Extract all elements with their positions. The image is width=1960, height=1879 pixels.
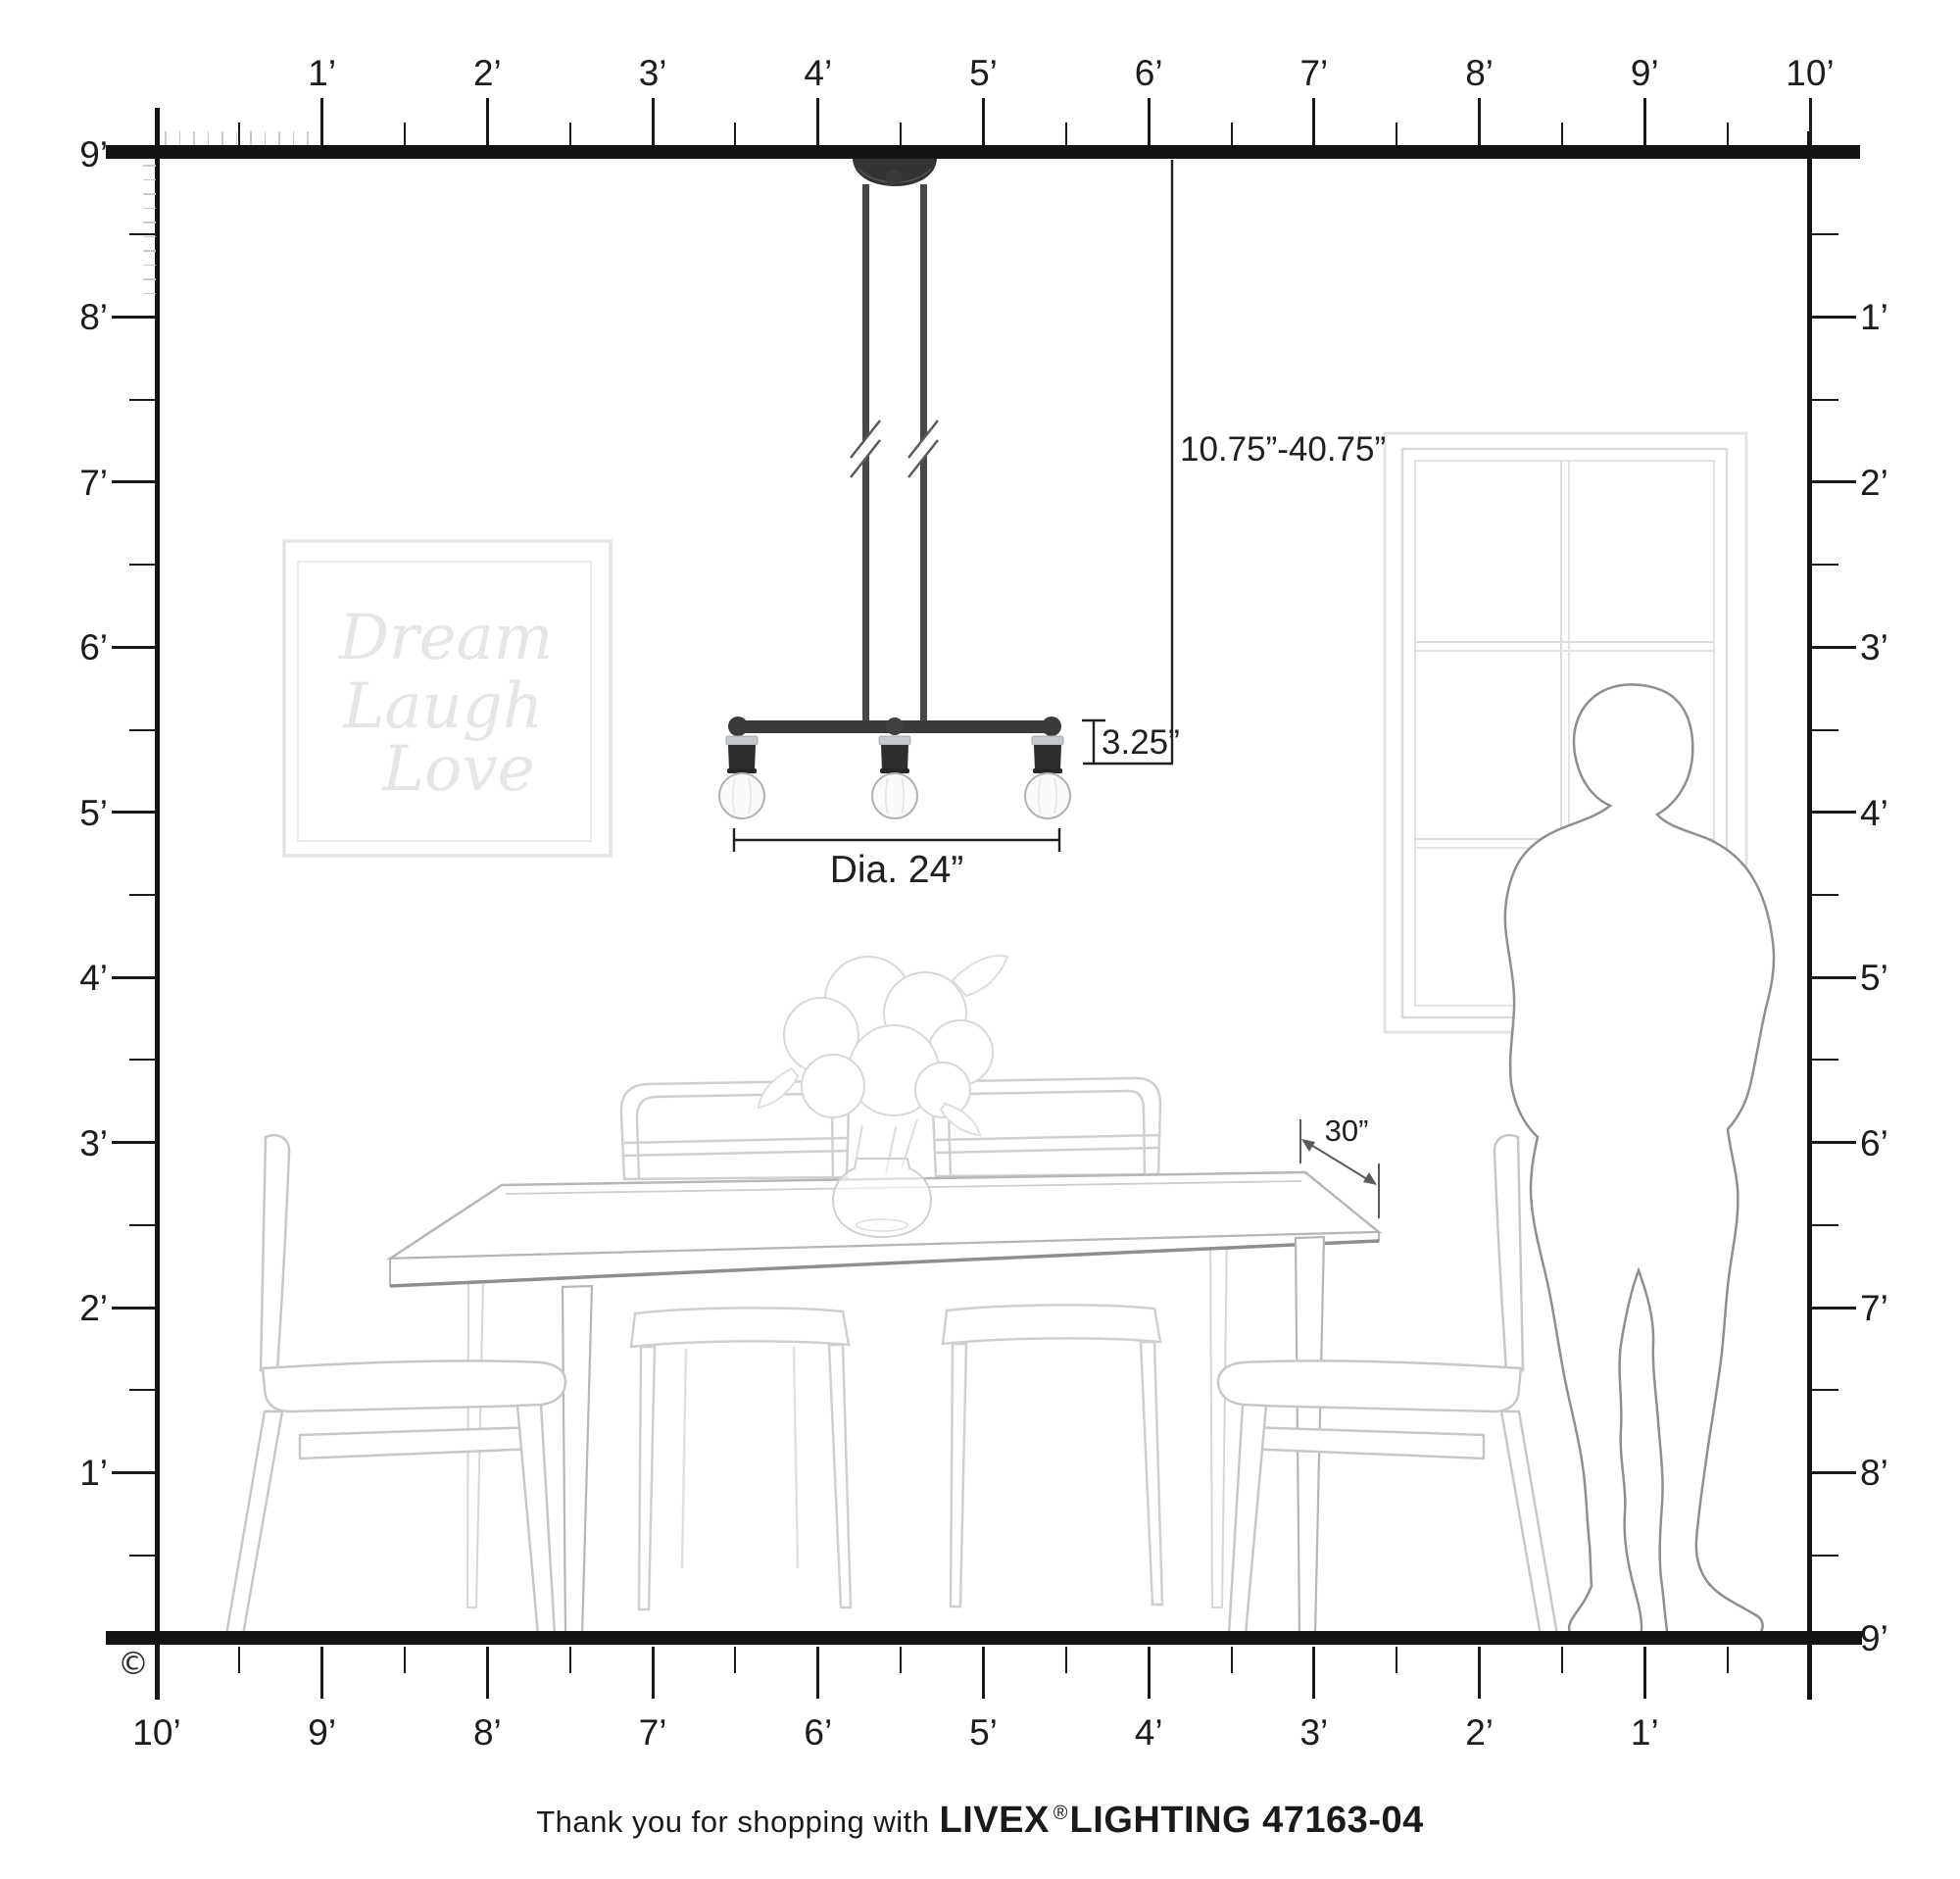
table-rear-leg-right [1210,1233,1227,1607]
wall-art-text: Dream Laugh Love [338,602,554,806]
footer-text: Thank you for shopping with LIVEX ® LIGH… [0,1800,1960,1842]
dimension-table-clearance: 30” [1325,1113,1369,1148]
scene-svg: Dream Laugh Love [0,0,1960,1879]
wall-art-line-3: Love [381,733,534,806]
person-silhouette [1505,684,1774,1643]
pendant-fixture [719,158,1070,818]
registered-trademark-symbol: ® [1053,1803,1068,1825]
socket-and-bulb-left [719,736,764,818]
footer-prefix: Thank you for shopping with [536,1805,929,1840]
chair-back-right [933,1078,1162,1607]
canopy-finial [886,170,902,185]
copyright-symbol: © [118,1645,149,1682]
wall-art-line-1: Dream [338,602,554,674]
footer-product: LIGHTING 47163-04 [1070,1800,1424,1842]
wall-art-frame: Dream Laugh Love [284,541,611,856]
chair-back-left [621,1081,851,1609]
bulb-center [872,773,917,818]
dimension-diagram-page: Dream Laugh Love [0,0,1960,1879]
bulb-right [1025,773,1070,818]
dimension-hanging-range: 10.75”-40.75” [1180,430,1386,469]
footer-brand: LIVEX [939,1800,1049,1842]
wall-art-line-2: Laugh [342,670,543,743]
dimension-diameter: Dia. 24” [830,849,964,891]
dimension-body-height: 3.25” [1102,723,1180,762]
socket-and-bulb-center [872,736,917,818]
table-front-leg-left [563,1286,592,1637]
bulb-left [719,773,764,818]
socket-and-bulb-right [1025,736,1070,818]
